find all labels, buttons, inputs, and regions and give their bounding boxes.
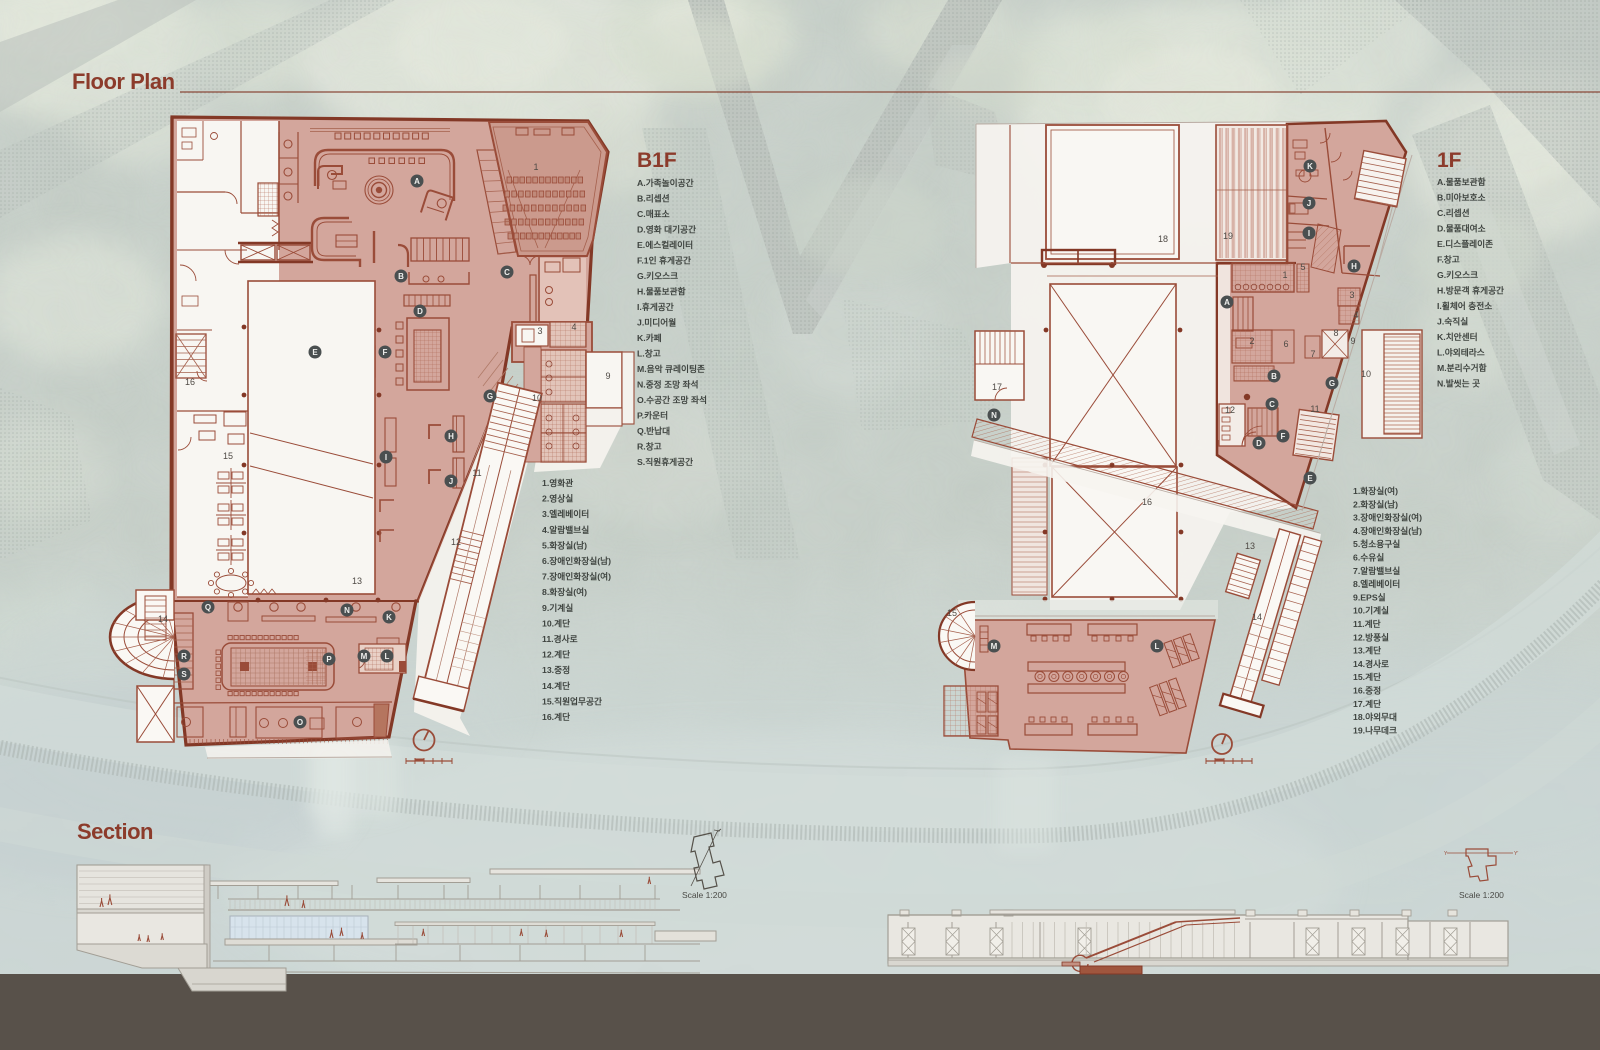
- svg-text:11: 11: [472, 468, 481, 478]
- svg-text:11.계단: 11.계단: [1353, 618, 1381, 629]
- svg-text:D: D: [1256, 439, 1262, 448]
- svg-text:N: N: [344, 606, 350, 615]
- svg-text:10.기계실: 10.기계실: [1353, 605, 1389, 616]
- svg-text:C: C: [504, 268, 510, 277]
- svg-text:A: A: [414, 177, 420, 186]
- svg-text:12.방풍실: 12.방풍실: [1353, 631, 1389, 642]
- svg-text:13.계단: 13.계단: [1353, 645, 1381, 656]
- svg-text:G: G: [487, 392, 493, 401]
- svg-text:4: 4: [571, 322, 576, 332]
- svg-text:I: I: [1308, 229, 1310, 238]
- svg-text:3: 3: [1349, 290, 1354, 300]
- svg-text:N: N: [991, 411, 997, 420]
- svg-text:4.알람밸브실: 4.알람밸브실: [542, 524, 589, 535]
- svg-text:8.엘레베이터: 8.엘레베이터: [1353, 578, 1400, 589]
- svg-text:L.야외테라스: L.야외테라스: [1437, 347, 1485, 358]
- svg-text:3: 3: [537, 326, 542, 336]
- svg-text:16: 16: [1142, 497, 1152, 507]
- svg-text:7.장애인화장실(여): 7.장애인화장실(여): [542, 571, 611, 582]
- svg-text:1: 1: [1282, 270, 1287, 280]
- svg-text:J.미디어월: J.미디어월: [637, 317, 676, 328]
- svg-text:G: G: [1329, 379, 1335, 388]
- svg-text:M.분리수거함: M.분리수거함: [1437, 362, 1487, 373]
- svg-text:H: H: [448, 432, 454, 441]
- svg-text:17.계단: 17.계단: [1353, 698, 1381, 709]
- svg-text:Floor Plan: Floor Plan: [72, 69, 175, 94]
- svg-text:H: H: [1351, 262, 1357, 271]
- svg-text:2: 2: [1249, 336, 1254, 346]
- svg-text:Q.반납대: Q.반납대: [637, 425, 670, 436]
- svg-text:1F: 1F: [1437, 149, 1462, 172]
- svg-text:E: E: [312, 348, 318, 357]
- svg-text:1.화장실(여): 1.화장실(여): [1353, 485, 1398, 496]
- svg-text:Section: Section: [77, 819, 153, 844]
- svg-text:12: 12: [451, 537, 461, 547]
- svg-text:N.중정 조망 좌석: N.중정 조망 좌석: [637, 379, 698, 390]
- svg-text:19: 19: [1223, 231, 1233, 241]
- svg-text:K: K: [386, 613, 392, 622]
- svg-text:N.발씻는 곳: N.발씻는 곳: [1437, 378, 1480, 389]
- svg-text:M.음악 큐레이팅존: M.음악 큐레이팅존: [637, 363, 705, 374]
- svg-text:C: C: [1269, 400, 1275, 409]
- svg-text:9.EPS실: 9.EPS실: [1353, 591, 1386, 602]
- svg-text:10: 10: [1361, 369, 1371, 379]
- svg-text:6: 6: [1283, 339, 1288, 349]
- svg-text:10: 10: [532, 393, 542, 403]
- svg-text:15.직원업무공간: 15.직원업무공간: [542, 695, 602, 706]
- svg-text:6.수유실: 6.수유실: [1353, 552, 1384, 563]
- svg-text:P.카운터: P.카운터: [637, 410, 668, 421]
- svg-text:Q: Q: [205, 603, 211, 612]
- svg-text:K: K: [1307, 162, 1313, 171]
- svg-text:B.리셉션: B.리셉션: [637, 193, 670, 204]
- svg-text:S.직원휴게공간: S.직원휴게공간: [637, 456, 693, 467]
- svg-text:1: 1: [533, 162, 538, 172]
- svg-text:S: S: [181, 670, 187, 679]
- svg-text:14: 14: [158, 614, 168, 624]
- svg-text:M: M: [991, 642, 998, 651]
- svg-text:H.방문객 휴게공간: H.방문객 휴게공간: [1437, 285, 1504, 296]
- svg-text:9: 9: [1350, 336, 1355, 346]
- svg-text:11: 11: [1310, 404, 1319, 414]
- svg-text:B.미아보호소: B.미아보호소: [1437, 192, 1486, 203]
- svg-text:5: 5: [1300, 262, 1305, 272]
- svg-text:12.계단: 12.계단: [542, 649, 570, 660]
- svg-text:15: 15: [223, 451, 233, 461]
- svg-text:R.창고: R.창고: [637, 441, 662, 452]
- svg-text:D.영화 대기공간: D.영화 대기공간: [637, 224, 696, 235]
- svg-text:E.에스컬레이터: E.에스컬레이터: [637, 239, 693, 250]
- svg-text:F: F: [1281, 432, 1286, 441]
- svg-text:D.물품대여소: D.물품대여소: [1437, 223, 1486, 234]
- svg-text:14: 14: [1252, 612, 1262, 622]
- svg-text:2.영상실: 2.영상실: [542, 493, 573, 504]
- svg-text:3.장애인화장실(여): 3.장애인화장실(여): [1353, 512, 1422, 523]
- svg-text:5.청소용구실: 5.청소용구실: [1353, 538, 1400, 549]
- svg-text:G.키오스크: G.키오스크: [1437, 269, 1478, 280]
- svg-text:6.장애인화장실(남): 6.장애인화장실(남): [542, 555, 611, 566]
- svg-text:J: J: [449, 477, 453, 486]
- svg-text:B1F: B1F: [637, 149, 677, 172]
- svg-text:B: B: [398, 272, 404, 281]
- svg-text:C.리셉션: C.리셉션: [1437, 207, 1470, 218]
- svg-text:17: 17: [992, 382, 1002, 392]
- svg-text:1.영화관: 1.영화관: [542, 477, 573, 488]
- svg-text:I.휠체어 충전소: I.휠체어 충전소: [1437, 300, 1492, 311]
- svg-text:F.1인 휴게공간: F.1인 휴게공간: [637, 255, 691, 266]
- svg-text:3.엘레베이터: 3.엘레베이터: [542, 508, 589, 519]
- svg-text:9.기계실: 9.기계실: [542, 602, 573, 613]
- svg-text:M: M: [361, 652, 368, 661]
- svg-text:K.치안센터: K.치안센터: [1437, 331, 1478, 342]
- svg-text:A: A: [1224, 298, 1230, 307]
- svg-text:4: 4: [1353, 310, 1358, 320]
- svg-text:14.계단: 14.계단: [542, 680, 570, 691]
- svg-text:P: P: [326, 655, 332, 664]
- svg-text:2.화장실(남): 2.화장실(남): [1353, 498, 1398, 509]
- svg-text:R: R: [181, 652, 187, 661]
- svg-text:8.화장실(여): 8.화장실(여): [542, 586, 587, 597]
- svg-text:8: 8: [1333, 328, 1338, 338]
- svg-text:A.물품보관함: A.물품보관함: [1437, 176, 1486, 187]
- svg-text:Scale 1:200: Scale 1:200: [1459, 890, 1504, 900]
- svg-text:Scale 1:200: Scale 1:200: [682, 890, 727, 900]
- svg-text:E.디스플레이존: E.디스플레이존: [1437, 238, 1493, 249]
- svg-text:18: 18: [1158, 234, 1168, 244]
- svg-text:11.경사로: 11.경사로: [542, 633, 578, 644]
- svg-text:F: F: [383, 348, 388, 357]
- svg-text:7: 7: [1310, 349, 1315, 359]
- svg-text:16.계단: 16.계단: [542, 711, 570, 722]
- svg-text:14.경사로: 14.경사로: [1353, 658, 1389, 669]
- svg-text:13: 13: [1245, 541, 1255, 551]
- svg-text:L: L: [1155, 642, 1160, 651]
- svg-text:C.매표소: C.매표소: [637, 208, 670, 219]
- svg-text:J.숙직실: J.숙직실: [1437, 316, 1468, 327]
- svg-text:Y': Y': [1514, 851, 1518, 857]
- svg-text:12: 12: [1225, 405, 1235, 415]
- svg-text:L: L: [385, 652, 390, 661]
- svg-text:L.창고: L.창고: [637, 348, 661, 359]
- svg-text:9: 9: [605, 371, 610, 381]
- svg-text:18.야외무대: 18.야외무대: [1353, 711, 1397, 722]
- svg-text:J: J: [1307, 199, 1311, 208]
- svg-text:13: 13: [352, 576, 362, 586]
- svg-text:B: B: [1271, 372, 1277, 381]
- svg-text:H.물품보관함: H.물품보관함: [637, 286, 686, 297]
- svg-text:7.알람밸브실: 7.알람밸브실: [1353, 565, 1400, 576]
- svg-text:16: 16: [185, 377, 195, 387]
- svg-text:K.카페: K.카페: [637, 332, 662, 343]
- svg-text:O.수공간 조망 좌석: O.수공간 조망 좌석: [637, 394, 707, 405]
- svg-text:13.중정: 13.중정: [542, 664, 570, 675]
- svg-text:G.키오스크: G.키오스크: [637, 270, 678, 281]
- svg-text:15: 15: [947, 608, 957, 618]
- svg-text:5.화장실(남): 5.화장실(남): [542, 539, 587, 550]
- svg-text:D: D: [417, 307, 423, 316]
- svg-text:A.가족놀이공간: A.가족놀이공간: [637, 177, 694, 188]
- svg-text:F.창고: F.창고: [1437, 254, 1460, 265]
- svg-text:10.계단: 10.계단: [542, 617, 570, 628]
- svg-text:19.나무데크: 19.나무데크: [1353, 724, 1397, 735]
- svg-text:O: O: [297, 718, 303, 727]
- svg-text:16.중정: 16.중정: [1353, 685, 1381, 696]
- svg-text:4.장애인화장실(남): 4.장애인화장실(남): [1353, 525, 1422, 536]
- svg-text:E: E: [1307, 474, 1313, 483]
- svg-text:I: I: [385, 453, 387, 462]
- svg-text:I.휴게공간: I.휴게공간: [637, 301, 674, 312]
- svg-text:15.계단: 15.계단: [1353, 671, 1381, 682]
